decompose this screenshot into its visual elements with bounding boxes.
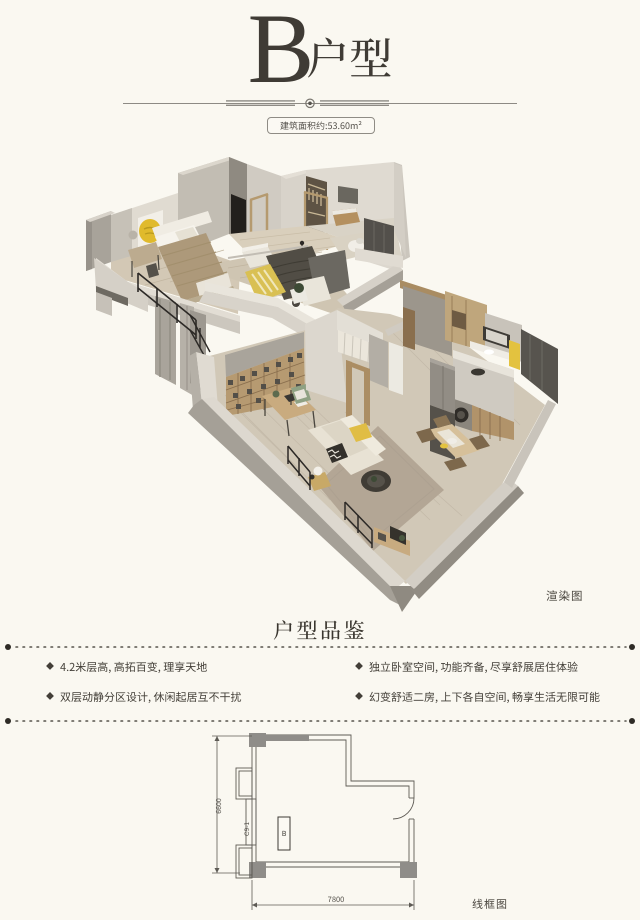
svg-text:6600: 6600	[214, 798, 224, 814]
svg-text:C9-1: C9-1	[241, 822, 251, 837]
svg-text:B: B	[282, 829, 287, 839]
svg-text:7800: 7800	[328, 894, 345, 905]
